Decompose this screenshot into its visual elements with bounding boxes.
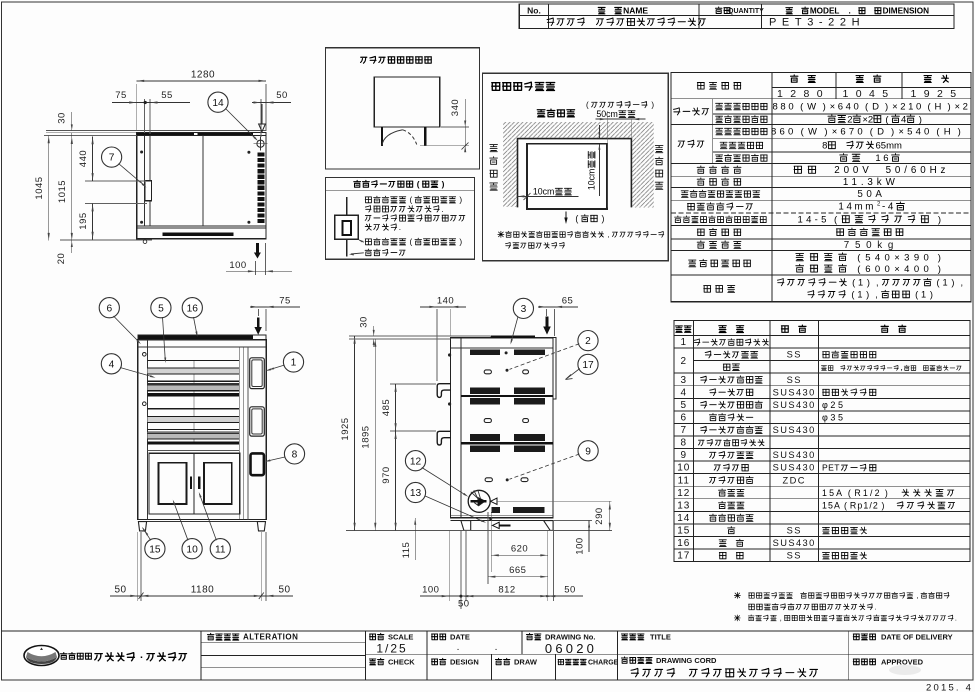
svg-text:1: 1 (857, 290, 863, 300)
svg-text:SUS430: SUS430 (773, 425, 816, 435)
svg-text:812: 812 (498, 585, 515, 596)
svg-text:11.3kW: 11.3kW (843, 177, 899, 188)
svg-text:50: 50 (114, 585, 126, 596)
svg-text:15A: 15A (822, 500, 841, 510)
svg-text:×640: ×640 (830, 101, 862, 112)
svg-text:440: 440 (78, 150, 89, 167)
svg-text:·: · (456, 644, 459, 655)
svg-text:14mm: 14mm (838, 202, 876, 213)
svg-text:1: 1 (921, 290, 927, 300)
svg-text:): ) (947, 101, 950, 112)
svg-text:8: 8 (292, 450, 298, 461)
svg-text:SS: SS (787, 551, 802, 561)
svg-text:DATE: DATE (450, 632, 470, 641)
svg-text:15: 15 (677, 525, 690, 536)
svg-text:485: 485 (381, 399, 392, 416)
svg-text:): ) (938, 214, 941, 225)
svg-text:140: 140 (437, 295, 454, 306)
svg-text:1925: 1925 (340, 417, 351, 440)
svg-text:(: ( (851, 290, 854, 300)
svg-text:6: 6 (681, 412, 688, 423)
svg-text:,: , (607, 230, 609, 239)
svg-text:1280: 1280 (191, 70, 215, 81)
svg-text:): ) (459, 196, 462, 205)
svg-text:DIMENSION: DIMENSION (883, 7, 929, 16)
svg-text:QUANTITY: QUANTITY (728, 8, 764, 15)
svg-text:4: 4 (681, 387, 688, 398)
svg-text:.: . (399, 223, 401, 232)
svg-text:12: 12 (410, 456, 422, 467)
svg-text:540×390: 540×390 (865, 252, 933, 263)
svg-text:×670: ×670 (832, 126, 866, 137)
svg-text:75: 75 (279, 296, 291, 307)
svg-text:(: ( (417, 179, 420, 189)
svg-text:SUS430: SUS430 (773, 463, 816, 473)
svg-text:620: 620 (511, 544, 528, 555)
svg-text:12: 12 (677, 488, 690, 499)
svg-text:(: ( (915, 290, 918, 300)
svg-text:16: 16 (187, 303, 199, 314)
svg-text:): ) (881, 500, 884, 510)
svg-text:1045: 1045 (843, 88, 896, 100)
svg-text:50: 50 (278, 585, 290, 596)
svg-text:): ) (938, 264, 941, 275)
svg-text:): ) (930, 290, 933, 300)
svg-text:,: , (876, 278, 879, 288)
svg-text:55: 55 (161, 90, 173, 101)
svg-text:17: 17 (582, 360, 594, 371)
svg-text:SUS430: SUS430 (773, 387, 816, 397)
svg-text:): ) (459, 238, 462, 247)
svg-text:): ) (601, 214, 604, 224)
svg-text:R1/2: R1/2 (854, 488, 881, 498)
svg-text:1015: 1015 (57, 180, 68, 203)
svg-text:PET: PET (822, 463, 840, 473)
svg-text:10cm: 10cm (587, 169, 597, 191)
svg-text:9: 9 (585, 446, 591, 457)
svg-text:): ) (919, 114, 922, 125)
svg-text:): ) (938, 252, 941, 263)
svg-text:2: 2 (847, 114, 852, 125)
svg-text:(: ( (844, 500, 847, 510)
svg-text:16: 16 (875, 153, 891, 164)
svg-text:750kg: 750kg (844, 240, 899, 251)
svg-text:): ) (442, 179, 445, 189)
svg-text:): ) (867, 278, 870, 288)
svg-text:4: 4 (901, 114, 906, 125)
svg-text:SCALE: SCALE (388, 632, 413, 641)
svg-text:1/25: 1/25 (376, 642, 407, 656)
svg-text:H: H (944, 126, 954, 137)
svg-text:): ) (891, 126, 894, 137)
svg-text:SUS430: SUS430 (773, 450, 816, 460)
svg-text:1: 1 (291, 358, 297, 369)
svg-text:): ) (823, 101, 826, 112)
svg-text:(: ( (937, 278, 940, 288)
svg-text:CHARGE: CHARGE (588, 659, 619, 666)
svg-text:,: , (875, 290, 878, 300)
svg-text:860: 860 (771, 126, 796, 137)
svg-text:340: 340 (450, 99, 461, 116)
svg-text:·: · (140, 652, 144, 664)
svg-text:φ25: φ25 (822, 400, 846, 410)
svg-text:): ) (866, 290, 869, 300)
svg-text:14-5: 14-5 (798, 214, 830, 225)
svg-text:.: . (955, 615, 957, 623)
svg-text:ZDC: ZDC (783, 475, 806, 485)
svg-text:1: 1 (681, 337, 688, 348)
svg-text:30: 30 (359, 316, 370, 328)
svg-text:200V: 200V (834, 165, 872, 176)
svg-text:600×400: 600×400 (865, 264, 933, 275)
svg-text:13: 13 (677, 500, 690, 511)
svg-text:MODEL: MODEL (810, 7, 840, 16)
svg-text:W: W (807, 101, 819, 112)
svg-text:1045: 1045 (34, 176, 45, 199)
svg-text:×2: ×2 (862, 114, 873, 125)
svg-text:.: . (441, 205, 443, 214)
svg-text:(: ( (409, 196, 412, 205)
svg-text:·: · (494, 644, 497, 655)
svg-text:,: , (916, 591, 918, 600)
svg-text:13: 13 (410, 488, 422, 499)
svg-text:1925: 1925 (911, 88, 964, 100)
svg-text:×540: ×540 (898, 126, 932, 137)
svg-text:(: ( (575, 214, 578, 224)
svg-text:φ35: φ35 (822, 412, 846, 422)
svg-text:5: 5 (681, 400, 688, 411)
svg-text:1180: 1180 (191, 585, 215, 596)
svg-text:D: D (877, 126, 887, 137)
svg-text:8: 8 (681, 438, 688, 449)
svg-text:×2: ×2 (955, 101, 971, 112)
svg-text:SS: SS (787, 375, 802, 385)
svg-text:1280: 1280 (777, 88, 830, 100)
svg-text:.: . (874, 603, 876, 612)
svg-text:16: 16 (677, 538, 690, 549)
svg-text:11: 11 (215, 544, 226, 555)
svg-text:-4: -4 (882, 202, 896, 213)
svg-text:): ) (885, 101, 888, 112)
svg-text:880: 880 (773, 101, 797, 112)
svg-text:(: ( (409, 238, 412, 247)
svg-text:NAME: NAME (623, 6, 648, 16)
svg-text:DATE OF DELIVERY: DATE OF DELIVERY (881, 632, 953, 641)
svg-text:14: 14 (677, 513, 690, 524)
svg-text:3: 3 (681, 375, 688, 386)
svg-text:50: 50 (564, 585, 576, 596)
svg-text:2015. 4: 2015. 4 (926, 683, 973, 692)
svg-text:(: ( (852, 278, 855, 288)
svg-text:65: 65 (562, 295, 574, 306)
svg-text:195: 195 (78, 212, 89, 229)
svg-text:SUS430: SUS430 (773, 538, 816, 548)
svg-text:(: ( (586, 101, 589, 110)
svg-text:5: 5 (158, 303, 164, 314)
svg-text:7: 7 (109, 153, 115, 164)
svg-text:APPROVED: APPROVED (881, 657, 924, 666)
svg-text:.: . (848, 7, 850, 16)
svg-text:): ) (958, 126, 961, 137)
svg-text:1: 1 (858, 278, 864, 288)
svg-text:4: 4 (109, 359, 115, 370)
svg-text:50/60Hz: 50/60Hz (886, 165, 950, 176)
svg-text:ALTERATION: ALTERATION (243, 633, 298, 642)
svg-text:PET3-22H: PET3-22H (769, 17, 865, 29)
svg-text:Rp1/2: Rp1/2 (850, 500, 879, 510)
svg-text:DRAWING No.: DRAWING No. (545, 632, 595, 641)
svg-text:,: , (780, 615, 782, 623)
svg-text:17: 17 (677, 551, 690, 562)
svg-text:1895: 1895 (361, 425, 372, 448)
svg-text:): ) (885, 488, 888, 498)
svg-text:15: 15 (149, 544, 161, 555)
svg-text:,: , (960, 278, 963, 288)
svg-text:970: 970 (381, 466, 392, 483)
svg-text:100: 100 (229, 260, 246, 271)
svg-text:10: 10 (677, 463, 690, 474)
svg-text:665: 665 (509, 565, 526, 576)
svg-text:H: H (935, 101, 944, 112)
svg-text:50: 50 (276, 90, 288, 101)
svg-text:20: 20 (56, 253, 67, 265)
svg-text:SS: SS (787, 350, 802, 360)
svg-text:W: W (808, 126, 820, 137)
svg-text:): ) (824, 126, 827, 137)
svg-text:(: ( (848, 488, 851, 498)
svg-text:7: 7 (681, 425, 688, 436)
svg-text:DESIGN: DESIGN (450, 657, 479, 666)
svg-text:10cm: 10cm (533, 187, 555, 197)
svg-text:75: 75 (115, 90, 127, 101)
svg-text:×210: ×210 (892, 101, 924, 112)
svg-text:DRAW: DRAW (514, 657, 538, 666)
svg-text:1: 1 (943, 278, 949, 288)
svg-text:2: 2 (681, 356, 688, 367)
svg-text:10: 10 (186, 544, 198, 555)
svg-text:65mm: 65mm (876, 140, 902, 151)
svg-text:TITLE: TITLE (650, 632, 671, 641)
svg-text:8: 8 (822, 140, 827, 151)
svg-text:15A: 15A (822, 488, 844, 498)
svg-text:D: D (872, 101, 881, 112)
svg-text:11: 11 (678, 475, 690, 486)
svg-text:): ) (951, 278, 954, 288)
svg-text:CHECK: CHECK (388, 657, 415, 666)
svg-text:14: 14 (212, 98, 224, 109)
svg-text:100: 100 (422, 585, 439, 596)
svg-text:50: 50 (458, 599, 470, 610)
svg-text:100: 100 (575, 537, 586, 554)
svg-text:SS: SS (787, 525, 802, 535)
svg-text:): ) (651, 101, 654, 110)
svg-text:SUS430: SUS430 (773, 400, 816, 410)
svg-text:06020: 06020 (545, 641, 597, 656)
svg-text:9: 9 (681, 450, 688, 461)
svg-text:50A: 50A (857, 189, 885, 200)
svg-text:290: 290 (594, 507, 605, 524)
svg-text:3: 3 (521, 304, 527, 315)
svg-text:115: 115 (401, 542, 412, 559)
svg-text:2: 2 (585, 336, 591, 347)
svg-text:6: 6 (106, 303, 112, 314)
svg-text:30: 30 (57, 112, 68, 124)
svg-text:DRAWING CORD: DRAWING CORD (656, 656, 717, 665)
svg-text:No.: No. (527, 5, 541, 15)
